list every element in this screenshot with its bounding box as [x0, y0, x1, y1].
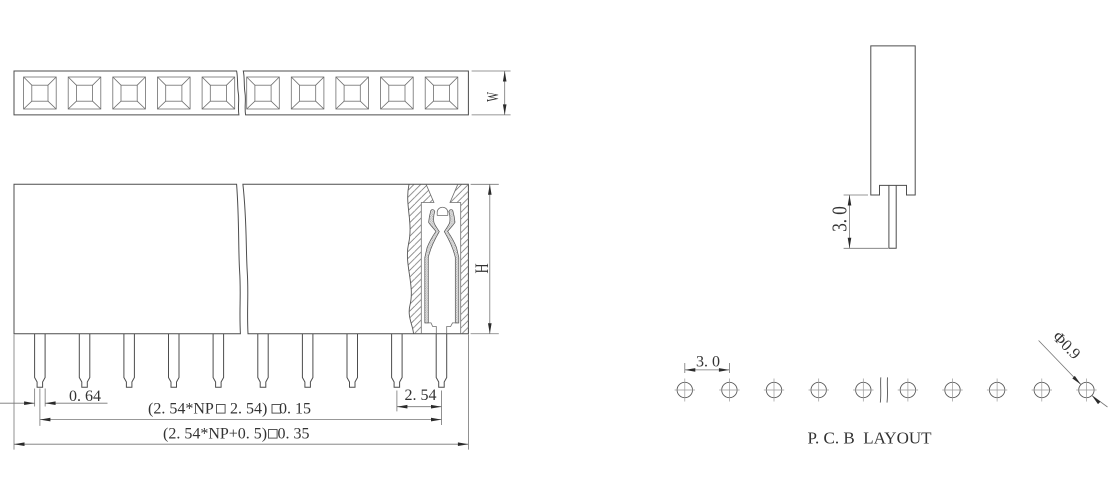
svg-text:3. 0: 3. 0	[829, 206, 852, 232]
svg-text:0. 64: 0. 64	[69, 388, 101, 405]
svg-text:0. 35: 0. 35	[278, 425, 310, 442]
svg-text:P. C. B LAYOUT: P. C. B LAYOUT	[807, 429, 932, 448]
svg-text:W: W	[484, 92, 502, 102]
svg-text:H: H	[471, 263, 493, 273]
svg-text:(2. 54*NP+0. 5): (2. 54*NP+0. 5)	[163, 425, 267, 442]
svg-text:Φ0.9: Φ0.9	[1049, 329, 1083, 363]
svg-text:0. 15: 0. 15	[279, 400, 311, 417]
svg-text:2. 54): 2. 54)	[230, 400, 267, 417]
svg-text:2. 54: 2. 54	[405, 387, 437, 404]
svg-text:3. 0: 3. 0	[696, 353, 720, 370]
svg-text:(2. 54*NP: (2. 54*NP	[148, 400, 214, 417]
